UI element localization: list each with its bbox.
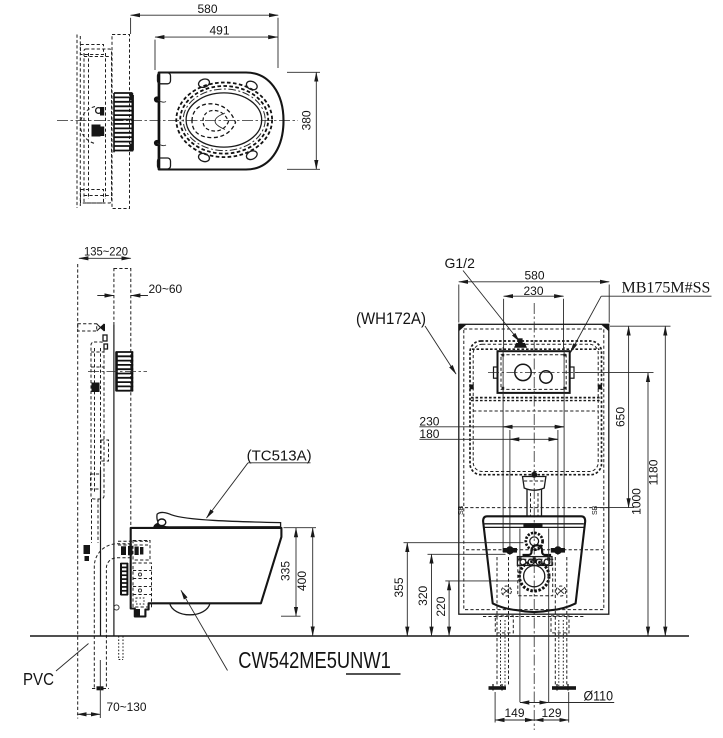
svg-text:(TC513A): (TC513A) bbox=[247, 447, 312, 464]
svg-text:SB: SB bbox=[592, 505, 599, 515]
svg-text:PVC: PVC bbox=[23, 669, 54, 689]
svg-text:491: 491 bbox=[209, 24, 229, 38]
svg-text:580: 580 bbox=[524, 269, 544, 283]
svg-text:70~130: 70~130 bbox=[107, 700, 147, 714]
svg-text:135~220: 135~220 bbox=[84, 244, 128, 258]
svg-text:129: 129 bbox=[541, 706, 561, 720]
svg-text:(WH172A): (WH172A) bbox=[356, 309, 426, 328]
svg-text:180: 180 bbox=[419, 427, 439, 441]
svg-text:580: 580 bbox=[197, 2, 217, 16]
svg-text:Ø110: Ø110 bbox=[584, 689, 614, 704]
svg-text:380: 380 bbox=[300, 110, 314, 130]
svg-text:1000: 1000 bbox=[630, 488, 644, 515]
svg-text:SB: SB bbox=[458, 505, 465, 515]
svg-text:MB175M#SS: MB175M#SS bbox=[622, 280, 711, 297]
svg-text:650: 650 bbox=[614, 407, 628, 427]
svg-text:G1/2: G1/2 bbox=[445, 255, 476, 271]
svg-text:CW542ME5UNW1: CW542ME5UNW1 bbox=[238, 647, 390, 673]
svg-text:400: 400 bbox=[295, 571, 309, 591]
svg-text:335: 335 bbox=[279, 561, 293, 581]
svg-text:149: 149 bbox=[504, 706, 524, 720]
svg-text:1180: 1180 bbox=[647, 459, 661, 485]
svg-text:320: 320 bbox=[416, 585, 430, 605]
svg-text:20~60: 20~60 bbox=[149, 282, 183, 296]
svg-text:355: 355 bbox=[392, 577, 406, 597]
svg-text:220: 220 bbox=[434, 596, 448, 616]
